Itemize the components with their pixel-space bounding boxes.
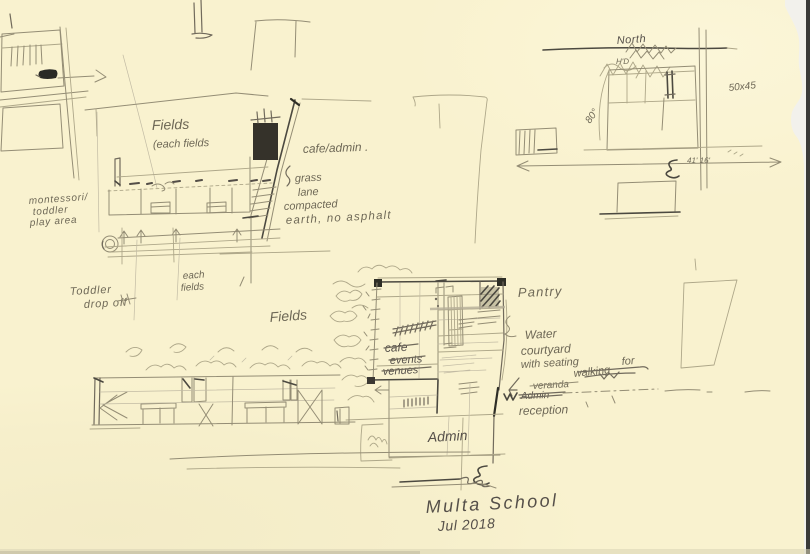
svg-text:Fields: Fields [152,116,190,133]
svg-text:drop off: drop off [84,297,128,311]
svg-text:cafe/admin .: cafe/admin . [303,140,369,156]
svg-text:courtyard: courtyard [520,341,571,358]
svg-text:Water: Water [524,326,557,342]
svg-text:lane: lane [298,186,319,199]
svg-text:each: each [182,269,205,282]
svg-text:Toddler: Toddler [70,284,113,298]
svg-text:grass: grass [295,172,323,185]
svg-text:reception: reception [519,402,569,418]
svg-text:Jul 2018: Jul 2018 [436,515,495,534]
svg-text:Fields: Fields [269,306,307,325]
svg-text:for: for [621,355,636,368]
svg-text:H'D: H'D [616,57,629,66]
svg-text:Admin: Admin [426,427,468,445]
svg-text:(each fields: (each fields [153,137,210,151]
svg-text:41' 16': 41' 16' [687,156,711,165]
svg-text:Pantry: Pantry [518,283,564,300]
svg-text:fields: fields [180,281,204,294]
